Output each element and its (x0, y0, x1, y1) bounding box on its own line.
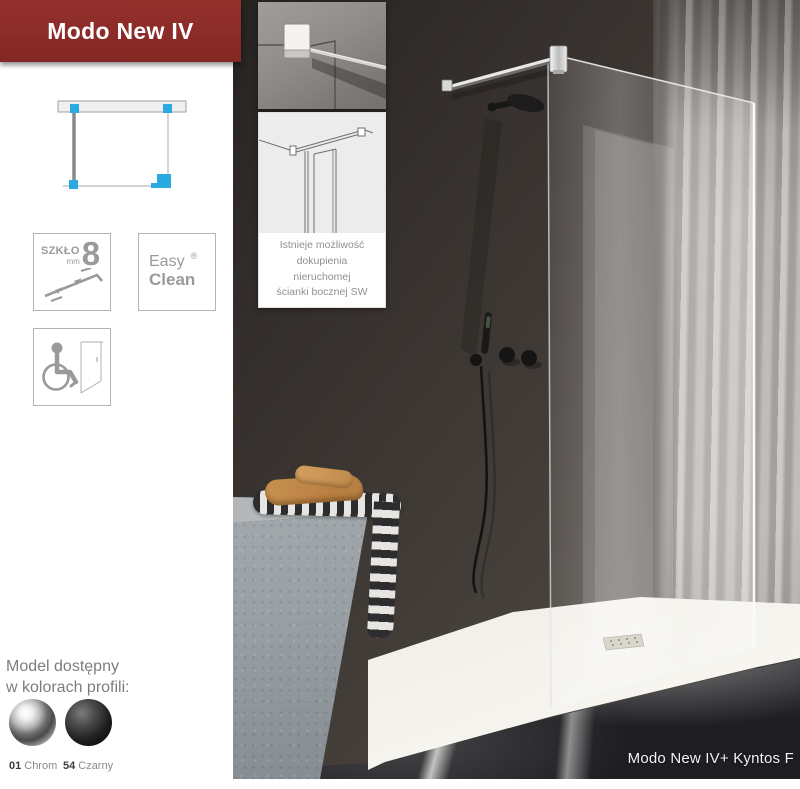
glass-thickness-badge: SZKŁO mm 8 (33, 233, 111, 311)
corner-connector-marker (151, 174, 171, 188)
photo-caption: Modo New IV+ Kyntos F (628, 750, 794, 767)
wall-anchor (442, 80, 452, 91)
shower-head (506, 91, 547, 116)
side-panel-note: Istnieje możliwość dokupienia nieruchome… (258, 112, 386, 308)
easy-clean-badge: Easy® Clean (138, 233, 216, 311)
catalog-page: Modo New IV SZKŁO mm 8 Easy® (0, 0, 800, 789)
mounting-detail-photo (258, 2, 386, 109)
accessibility-badge (33, 328, 111, 406)
easy-clean-line2: Clean (149, 271, 215, 290)
glass-thickness-value: 8 (82, 240, 100, 268)
shower-head-shadow (461, 118, 502, 357)
wall-bracket-detail-icon (258, 2, 386, 109)
water-outlet (470, 354, 482, 366)
mixer-knob (499, 347, 515, 363)
mixer-knob (521, 350, 537, 366)
glass-pane-icon (41, 268, 105, 302)
product-title-banner: Modo New IV (0, 0, 241, 62)
registered-mark: ® (191, 251, 198, 261)
top-view-diagram (33, 80, 208, 205)
black-sphere-swatch (65, 699, 112, 746)
easy-clean-line1: Easy (149, 253, 185, 270)
wheelchair-icon (39, 335, 105, 399)
chrome-swatch-label: 01Chrom (9, 760, 57, 772)
glass-unit: mm (66, 258, 79, 266)
note-text: Istnieje możliwość dokupienia nieruchome… (259, 233, 385, 301)
profile-colors-heading: Model dostępny w kolorach profili: (6, 656, 130, 698)
top-bracket-clamp (553, 70, 564, 74)
mounting-detail-drawing (259, 113, 385, 233)
connector-marker (70, 104, 79, 113)
glass-label: SZKŁO (41, 246, 80, 257)
product-title: Modo New IV (47, 18, 193, 45)
top-bracket (550, 46, 567, 72)
black-swatch-label: 54Czarny (63, 760, 113, 772)
connector-marker (163, 104, 172, 113)
connector-marker (69, 180, 78, 189)
glass-reflection-band (595, 130, 653, 660)
chrome-sphere-swatch (9, 699, 56, 746)
shower-arm (492, 103, 511, 107)
